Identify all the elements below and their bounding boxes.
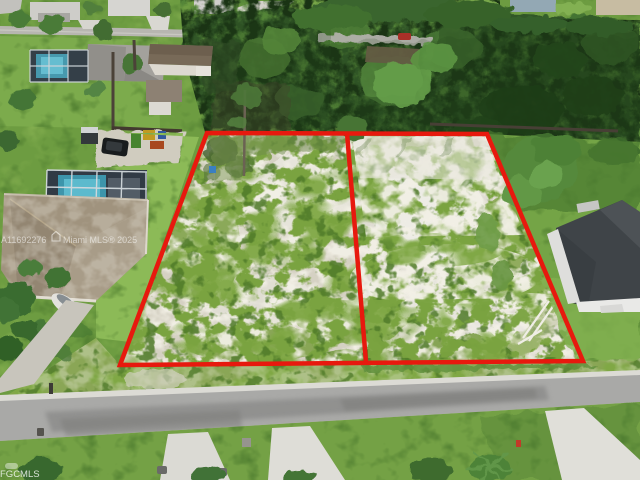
svg-text:FGCMLS: FGCMLS: [0, 469, 40, 480]
svg-text:A11692276: A11692276: [1, 235, 46, 245]
svg-text:Miami MLS® 2025: Miami MLS® 2025: [63, 235, 137, 245]
